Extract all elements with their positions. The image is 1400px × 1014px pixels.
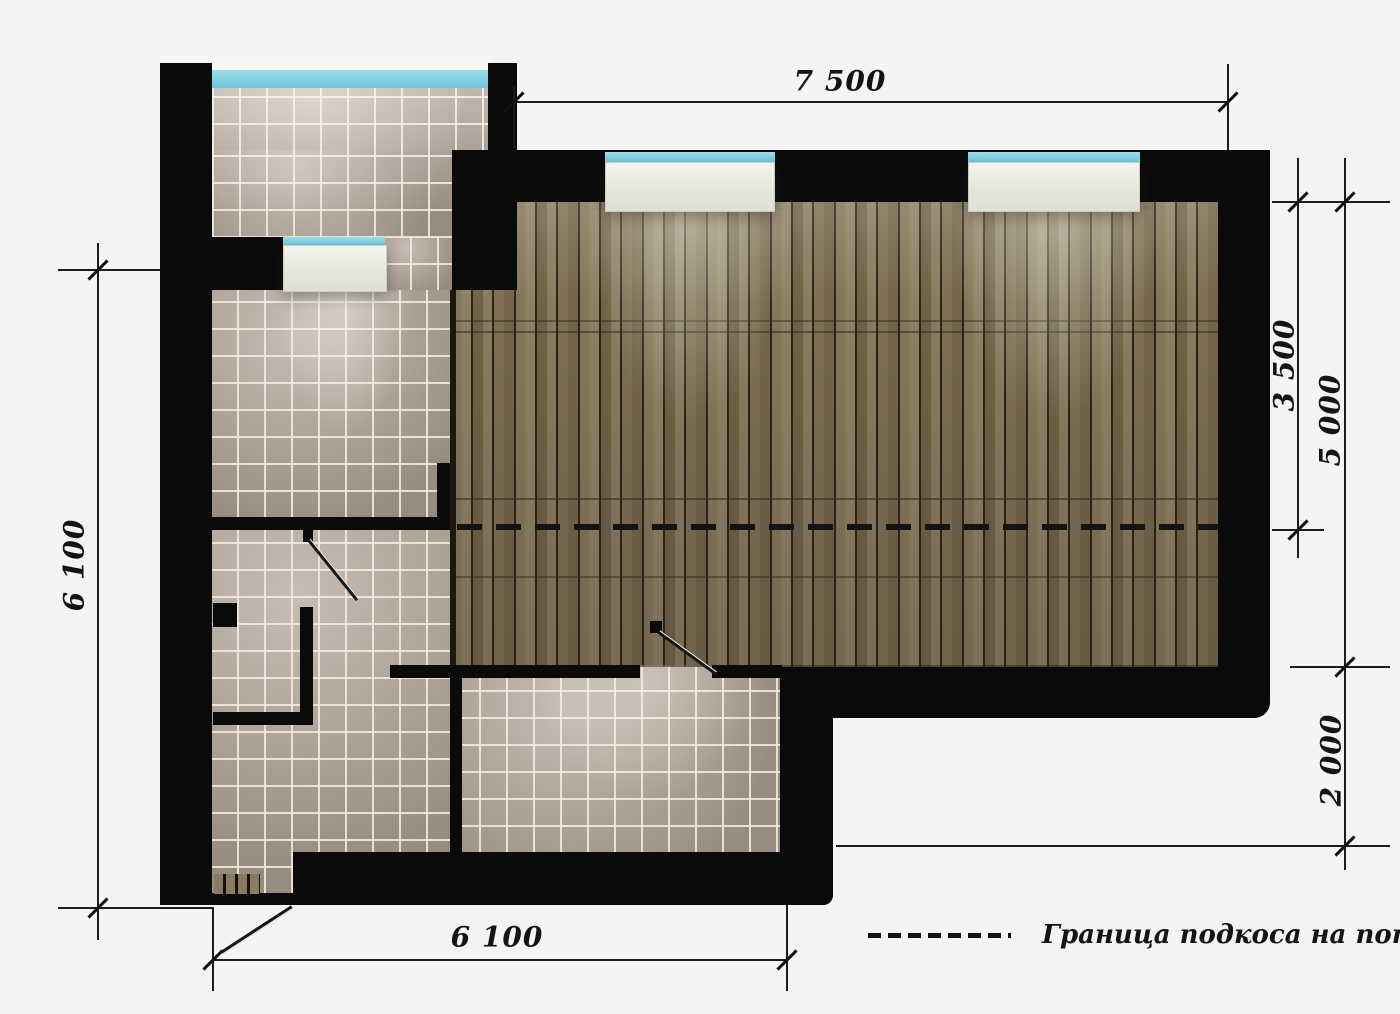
bathroom-top-wall-right	[712, 665, 782, 678]
left-exterior-wall	[160, 63, 212, 905]
inner-window-sill	[283, 245, 387, 292]
dim-top-label: 7 500	[794, 65, 887, 98]
balcony-window	[212, 70, 488, 88]
legend-dash-sample	[868, 933, 1011, 938]
dim-bottom-line	[213, 959, 787, 961]
kitchen-living-partition	[450, 290, 456, 667]
dim-bottom-ext-right	[786, 905, 788, 991]
dim-left-ext-top	[58, 269, 160, 271]
floor-plan: 7 500 3 500 5 000 2 000 6 100 6 100 Гран…	[0, 0, 1400, 1014]
kitchen-floor	[210, 290, 452, 519]
closet-wall-stub	[213, 603, 237, 627]
dim-top-ext-left	[513, 86, 515, 148]
closet-wall-vertical	[300, 607, 313, 717]
balcony-door-passage-floor	[383, 237, 453, 292]
dim-top-line	[514, 101, 1228, 103]
entry-threshold	[212, 893, 293, 905]
dim-bottom-label: 6 100	[451, 921, 544, 954]
living-room-floor	[452, 202, 1218, 667]
bathroom-left-wall	[450, 678, 462, 852]
dim-3500-label: 3 500	[1268, 319, 1301, 412]
dim-right-ext-5000	[1290, 666, 1390, 668]
dim-left-label: 6 100	[58, 519, 91, 612]
top-exterior-wall	[452, 150, 1270, 202]
bottom-exterior-wall	[293, 852, 833, 905]
living-window-1-sill	[605, 162, 775, 212]
bathroom-floor	[452, 665, 782, 854]
balcony-kitchen-wall	[208, 237, 283, 290]
legend-label: Граница подкоса на потолке	[1042, 920, 1400, 950]
right-exterior-wall	[1218, 150, 1270, 718]
dim-right-ext-bottom	[836, 845, 1390, 847]
bathroom-top-wall-left	[390, 665, 640, 678]
ceiling-brace-dashed-line	[457, 524, 1218, 530]
balcony-floor-lower	[212, 150, 453, 238]
hallway-floor	[210, 519, 454, 895]
kitchen-hall-wall	[208, 517, 453, 530]
living-window-2-sill	[968, 162, 1140, 212]
dim-top-ext-right	[1227, 64, 1229, 150]
dim-left-line	[97, 243, 99, 940]
entry-door-mat	[214, 874, 260, 894]
living-bottom-wall	[830, 667, 1270, 718]
dim-right-ext-top	[1272, 201, 1390, 203]
dim-5000-label: 5 000	[1314, 374, 1347, 467]
dim-2000-label: 2 000	[1315, 714, 1348, 807]
balcony-living-wall	[452, 200, 517, 290]
dim-bottom-ext-left	[212, 907, 214, 991]
dim-left-ext-bottom	[58, 907, 212, 909]
closet-wall-horizontal	[213, 712, 313, 725]
entry-door-leaf	[220, 905, 293, 954]
balcony-floor	[212, 88, 488, 152]
